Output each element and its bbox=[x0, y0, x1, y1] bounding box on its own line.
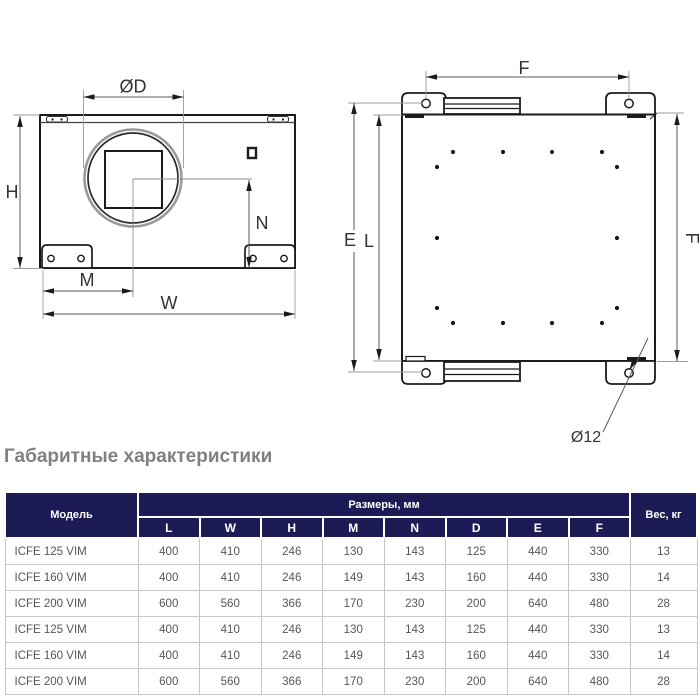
value-cell: 410 bbox=[200, 643, 262, 669]
model-cell: ICFE 200 VIM bbox=[5, 591, 138, 617]
value-cell: 143 bbox=[384, 565, 446, 591]
catalog-page: ØD H N M W bbox=[0, 0, 700, 700]
weight-cell: 13 bbox=[630, 538, 697, 565]
weight-cell: 28 bbox=[630, 669, 697, 695]
value-cell: 480 bbox=[569, 591, 631, 617]
value-cell: 130 bbox=[323, 538, 385, 565]
rail-bottom bbox=[444, 362, 520, 381]
value-cell: 480 bbox=[569, 669, 631, 695]
technical-drawings: ØD H N M W bbox=[0, 0, 700, 460]
dim-column-header-m: M bbox=[323, 517, 385, 538]
value-cell: 246 bbox=[261, 565, 323, 591]
table-body: ICFE 125 VIM40041024613014312544033013IC… bbox=[5, 538, 697, 695]
weight-cell: 28 bbox=[630, 591, 697, 617]
bracket-hole bbox=[422, 99, 430, 107]
value-cell: 200 bbox=[446, 669, 508, 695]
value-cell: 330 bbox=[569, 538, 631, 565]
weight-cell: 13 bbox=[630, 617, 697, 643]
section-title: Габаритные характеристики bbox=[4, 446, 272, 468]
value-cell: 230 bbox=[384, 591, 446, 617]
value-cell: 366 bbox=[261, 591, 323, 617]
dimensions-group-header: Размеры, мм bbox=[138, 492, 630, 517]
value-cell: 170 bbox=[323, 591, 385, 617]
dim-column-header-f: F bbox=[569, 517, 631, 538]
table-header: Модель Размеры, мм Вес, кг LWHMNDEF bbox=[5, 492, 697, 538]
flange-tab-right bbox=[268, 117, 289, 123]
dim-label-hole-diameter: Ø12 bbox=[571, 429, 601, 446]
rail-top bbox=[444, 98, 520, 114]
dim-column-header-e: E bbox=[507, 517, 569, 538]
value-cell: 160 bbox=[446, 565, 508, 591]
table-row: ICFE 160 VIM40041024614914316044033014 bbox=[5, 643, 697, 669]
value-cell: 149 bbox=[323, 565, 385, 591]
dim-label-n: N bbox=[256, 213, 269, 233]
switch-box bbox=[248, 148, 256, 158]
value-cell: 200 bbox=[446, 591, 508, 617]
value-cell: 130 bbox=[323, 617, 385, 643]
value-cell: 143 bbox=[384, 538, 446, 565]
weight-cell: 14 bbox=[630, 643, 697, 669]
model-column-header: Модель bbox=[5, 492, 138, 538]
dim-label-h: H bbox=[6, 182, 19, 202]
value-cell: 400 bbox=[138, 538, 200, 565]
table-row: ICFE 125 VIM40041024613014312544033013 bbox=[5, 538, 697, 565]
value-cell: 230 bbox=[384, 669, 446, 695]
weight-cell: 14 bbox=[630, 565, 697, 591]
table-row: ICFE 160 VIM40041024614914316044033014 bbox=[5, 565, 697, 591]
dim-label-f-top: F bbox=[519, 58, 530, 78]
dim-label-diameter: ØD bbox=[120, 77, 147, 97]
value-cell: 440 bbox=[507, 538, 569, 565]
model-cell: ICFE 160 VIM bbox=[5, 643, 138, 669]
dim-label-m: M bbox=[80, 270, 95, 290]
value-cell: 400 bbox=[138, 565, 200, 591]
value-cell: 366 bbox=[261, 669, 323, 695]
value-cell: 143 bbox=[384, 643, 446, 669]
value-cell: 410 bbox=[200, 538, 262, 565]
value-cell: 125 bbox=[446, 617, 508, 643]
table-row: ICFE 200 VIM60056036617023020064048028 bbox=[5, 591, 697, 617]
inlet-square bbox=[105, 151, 162, 208]
value-cell: 246 bbox=[261, 538, 323, 565]
model-cell: ICFE 200 VIM bbox=[5, 669, 138, 695]
bracket-hole bbox=[422, 369, 430, 377]
value-cell: 330 bbox=[569, 643, 631, 669]
value-cell: 440 bbox=[507, 565, 569, 591]
dim-column-header-w: W bbox=[200, 517, 262, 538]
dim-label-l: L bbox=[364, 231, 374, 251]
side-view-drawing: F E L F Ø12 bbox=[344, 58, 700, 446]
dim-label-f-right: F bbox=[682, 233, 700, 244]
value-cell: 410 bbox=[200, 617, 262, 643]
value-cell: 160 bbox=[446, 643, 508, 669]
weight-column-header: Вес, кг bbox=[630, 492, 697, 538]
value-cell: 640 bbox=[507, 669, 569, 695]
value-cell: 600 bbox=[138, 669, 200, 695]
value-cell: 560 bbox=[200, 591, 262, 617]
value-cell: 170 bbox=[323, 669, 385, 695]
table-row: ICFE 125 VIM40041024613014312544033013 bbox=[5, 617, 697, 643]
dim-column-header-l: L bbox=[138, 517, 200, 538]
bracket-hole bbox=[625, 369, 633, 377]
bracket-hole bbox=[625, 99, 633, 107]
value-cell: 330 bbox=[569, 617, 631, 643]
value-cell: 149 bbox=[323, 643, 385, 669]
value-cell: 125 bbox=[446, 538, 508, 565]
value-cell: 440 bbox=[507, 617, 569, 643]
value-cell: 143 bbox=[384, 617, 446, 643]
dim-column-header-h: H bbox=[261, 517, 323, 538]
front-view-drawing: ØD H N M W bbox=[6, 77, 296, 320]
value-cell: 246 bbox=[261, 617, 323, 643]
value-cell: 440 bbox=[507, 643, 569, 669]
value-cell: 600 bbox=[138, 591, 200, 617]
value-cell: 640 bbox=[507, 591, 569, 617]
value-cell: 400 bbox=[138, 643, 200, 669]
value-cell: 246 bbox=[261, 643, 323, 669]
value-cell: 410 bbox=[200, 565, 262, 591]
model-cell: ICFE 160 VIM bbox=[5, 565, 138, 591]
dim-column-header-n: N bbox=[384, 517, 446, 538]
dim-label-e: E bbox=[344, 230, 356, 250]
dim-label-w: W bbox=[161, 293, 178, 313]
model-cell: ICFE 125 VIM bbox=[5, 538, 138, 565]
value-cell: 330 bbox=[569, 565, 631, 591]
table-row: ICFE 200 VIM60056036617023020064048028 bbox=[5, 669, 697, 695]
value-cell: 560 bbox=[200, 669, 262, 695]
dim-column-header-d: D bbox=[446, 517, 508, 538]
value-cell: 400 bbox=[138, 617, 200, 643]
model-cell: ICFE 125 VIM bbox=[5, 617, 138, 643]
notch-bottom-left bbox=[406, 357, 425, 362]
flange-tab-left bbox=[47, 117, 68, 123]
dimensions-table: Модель Размеры, мм Вес, кг LWHMNDEF ICFE… bbox=[4, 491, 698, 695]
